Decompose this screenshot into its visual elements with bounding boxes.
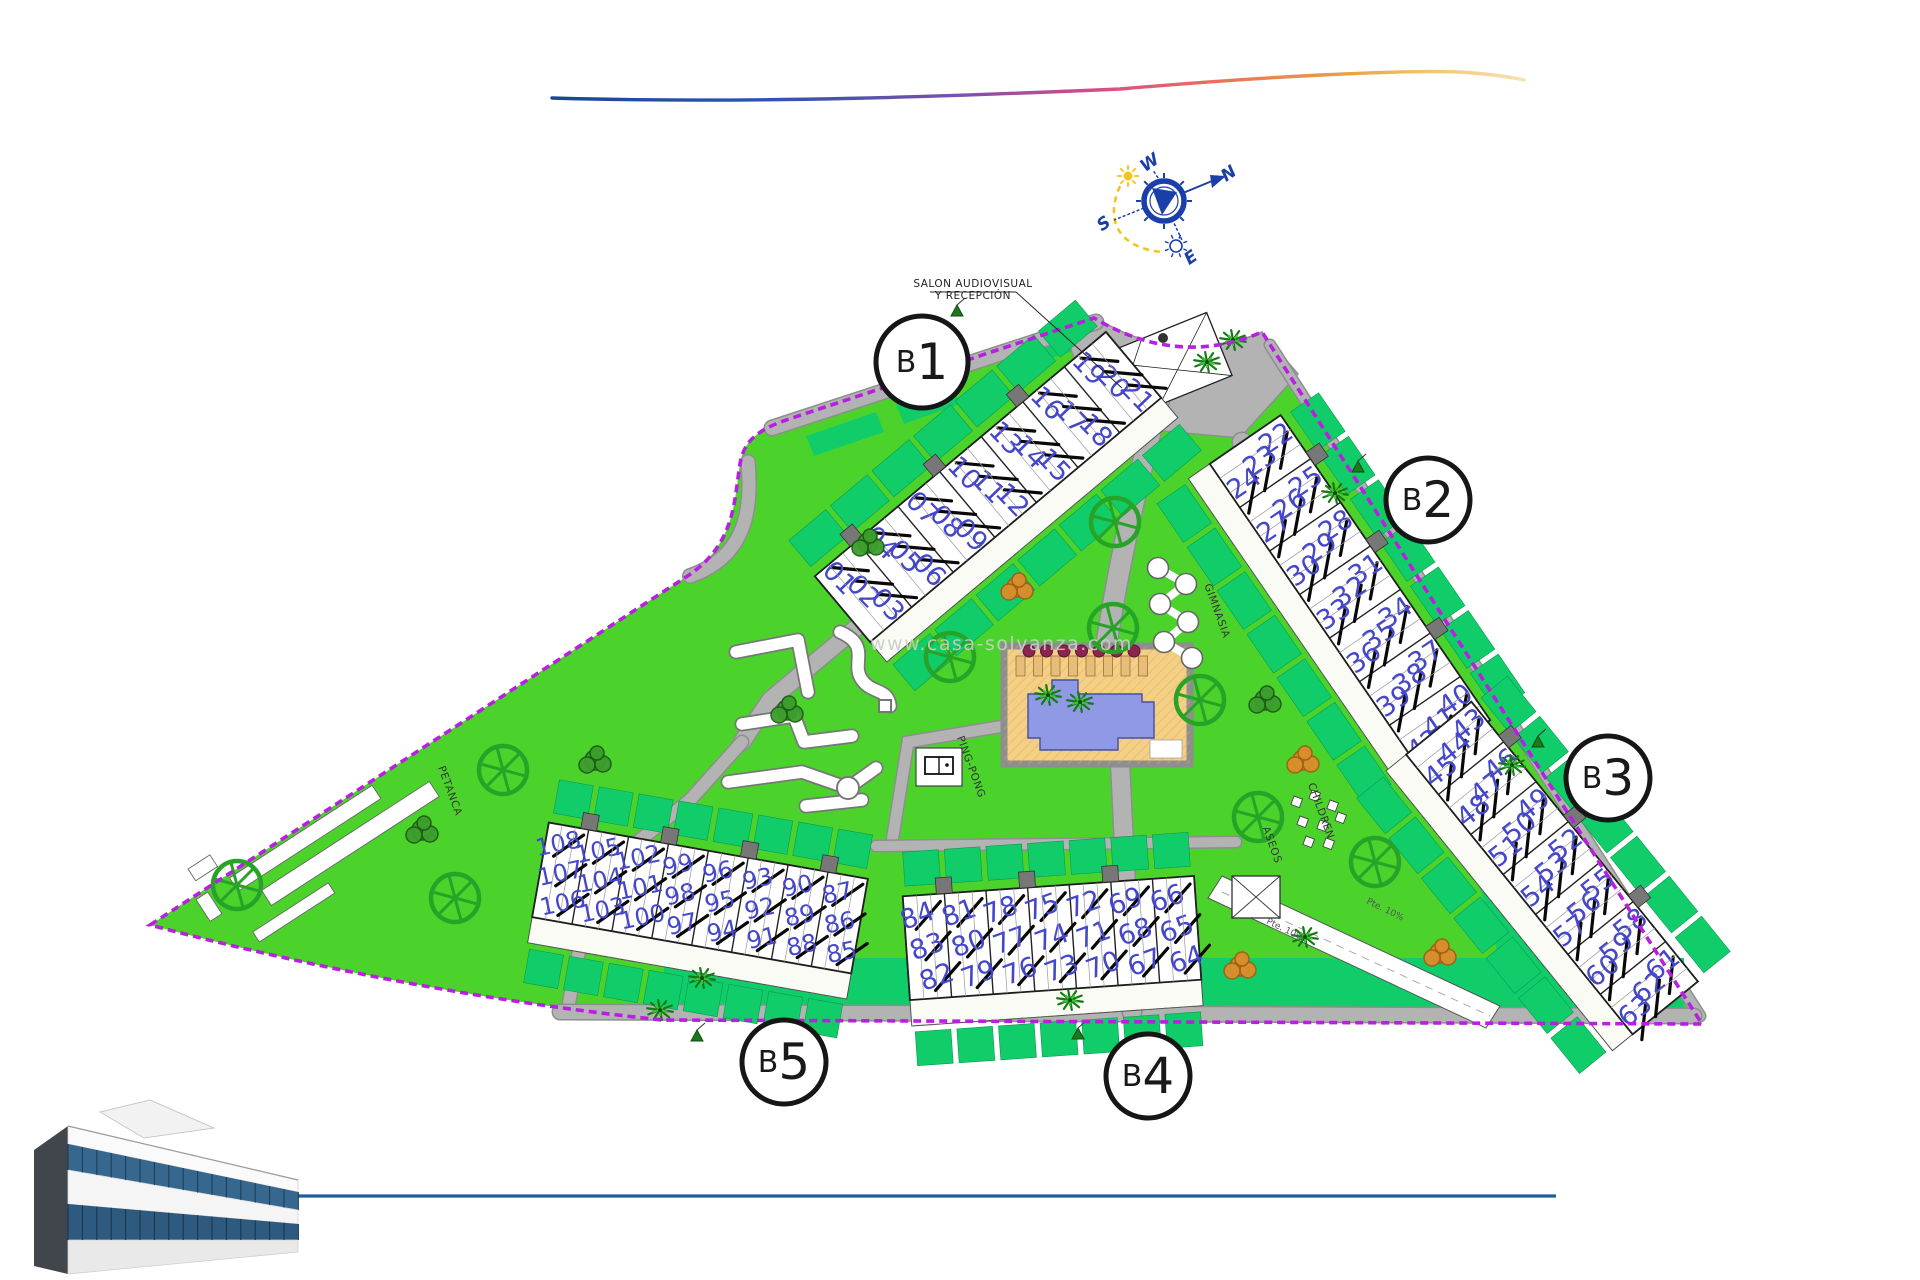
minigolf-node <box>879 700 891 712</box>
sun-lounger-icon <box>1086 656 1095 676</box>
sun-lounger-icon <box>1121 656 1130 676</box>
gym-station-icon <box>1154 632 1175 653</box>
salon-label: SALON AUDIOVISUAL <box>913 278 1032 290</box>
marker-flag-icon <box>691 1023 705 1041</box>
garden-strip <box>593 787 633 826</box>
compass-S: S <box>1093 212 1115 235</box>
sun-lounger-icon <box>1104 656 1113 676</box>
garden-strip <box>564 956 604 995</box>
company-logo-building <box>34 1100 298 1274</box>
gym-station-icon <box>1176 574 1197 595</box>
gym-station-icon <box>1182 648 1203 669</box>
brand-swoosh <box>552 72 1524 100</box>
garden-strip <box>957 1026 995 1062</box>
garden-strip <box>524 949 564 988</box>
garden-strip <box>1069 838 1107 874</box>
gym-station-icon <box>1150 594 1171 615</box>
sun-lounger-icon <box>1069 656 1078 676</box>
stair-block <box>740 841 759 860</box>
garden-strip <box>833 829 873 868</box>
compass-W: W <box>1137 149 1165 177</box>
stair-block <box>581 812 600 831</box>
garden-strip <box>903 850 941 886</box>
sun-lounger-icon <box>1016 656 1025 676</box>
sun-lounger-icon <box>1034 656 1043 676</box>
compass-rose: WNSE <box>1093 149 1240 270</box>
bin-icon <box>1158 333 1168 343</box>
stair-block <box>820 855 839 874</box>
garden-strip <box>998 1023 1036 1059</box>
site-plan-page: 0102030405060708091011121314151617181920… <box>0 0 1920 1280</box>
gym-station-icon <box>1178 612 1199 633</box>
stair-block <box>935 877 952 894</box>
gym-station-icon <box>1148 558 1169 579</box>
garden-strip <box>1152 832 1190 868</box>
garden-strip <box>986 844 1024 880</box>
sun-lounger-icon <box>1051 656 1060 676</box>
stair-block <box>1018 871 1035 888</box>
garden-strip <box>753 815 793 854</box>
garden-strip <box>723 984 763 1023</box>
salon-label: Y RECEPCIÓN <box>934 289 1011 302</box>
garden-strip <box>673 801 713 840</box>
sun-icon <box>1117 165 1139 187</box>
garden-strip <box>603 963 643 1002</box>
stair-block <box>661 827 680 846</box>
sun-lounger-icon <box>1139 656 1148 676</box>
compass-N: N <box>1217 162 1240 187</box>
watermark: www.casa-solyanza.com <box>870 633 1133 655</box>
stair-block <box>1102 865 1119 882</box>
minigolf-node <box>837 777 859 799</box>
garden-strip <box>915 1029 953 1065</box>
